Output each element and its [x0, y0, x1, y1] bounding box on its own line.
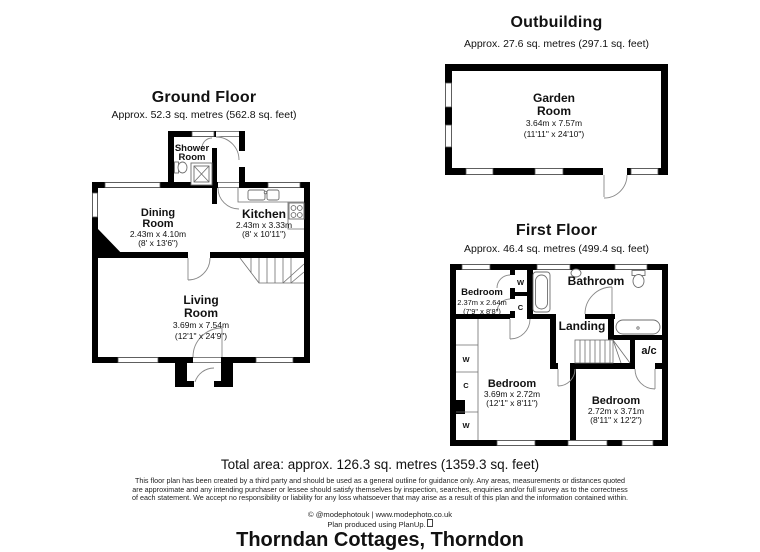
missing-glyph-box [427, 519, 433, 527]
first-floor-title: First Floor [443, 222, 670, 240]
living-room-door-swing [188, 258, 210, 280]
ground-floor-stairs [240, 258, 304, 283]
bedroom1-label: Bedroom [461, 287, 503, 298]
wardrobe3-label: W [462, 421, 470, 430]
outbuilding-doors [604, 175, 627, 198]
living-room-label: Living [183, 293, 218, 307]
wardrobe-label: W [517, 278, 525, 287]
disclaimer: This floor plan has been created by a th… [0, 477, 760, 503]
dining-room-imperial: (8' x 13'6") [138, 238, 178, 248]
porch-door-swing [195, 368, 214, 382]
bedroom3-imperial: (8'11" x 12'2") [590, 415, 642, 425]
bedroom2-imperial: (12'1" x 8'11") [486, 398, 538, 408]
disclaimer-line: of each statement. We accept no responsi… [0, 494, 760, 503]
garden-room-door-swing [604, 175, 627, 198]
bedroom1-door-swing [510, 319, 530, 339]
garden-room-label2: Room [537, 104, 571, 118]
garden-room-metric: 3.64m x 7.57m [526, 118, 582, 128]
cupboard-label: C [518, 303, 524, 312]
living-room-imperial: (12'1" x 24'9") [175, 331, 227, 341]
ac-label: a/c [641, 345, 656, 357]
ground-floor-title: Ground Floor [88, 89, 320, 107]
credit-text: © @modephotouk | www.modephoto.co.uk [308, 510, 452, 519]
sink-icon [248, 190, 265, 200]
floorplan-canvas: Ground Floor Approx. 52.3 sq. metres (56… [0, 0, 760, 552]
wardrobe2-label: W [462, 355, 470, 364]
outbuilding-plan: Garden Room 3.64m x 7.57m (11'11" x 24'1… [443, 62, 670, 202]
first-floor-plan: Bedroom 2.37m x 2.64m (7'9" x 8'8") W C … [448, 262, 670, 448]
first-floor-subtitle: Approx. 46.4 sq. metres (499.4 sq. feet) [423, 243, 690, 255]
entrance-door-swing [216, 137, 239, 160]
bedroom3-door-swing [635, 369, 655, 389]
total-area: Total area: approx. 126.3 sq. metres (13… [0, 457, 760, 472]
cupboard2-label: C [463, 381, 469, 390]
drainer-icon [267, 190, 279, 200]
ground-floor-subtitle: Approx. 52.3 sq. metres (562.8 sq. feet) [68, 109, 340, 121]
kitchen-label: Kitchen [242, 207, 286, 221]
bathroom-door-swing [585, 287, 612, 314]
first-floor-stairs [575, 340, 630, 363]
living-room-label2: Room [184, 306, 218, 320]
produced-text: Plan produced using PlanUp. [327, 520, 425, 529]
outbuilding-title: Outbuilding [443, 14, 670, 32]
shower-room-fixtures [175, 162, 213, 185]
credit-line: © @modephotouk | www.modephoto.co.uk [0, 510, 760, 519]
kitchen-door-swing [218, 188, 239, 209]
shower-room-label2: Room [179, 152, 206, 163]
bedroom1-metric: 2.37m x 2.64m [457, 298, 507, 307]
produced-line: Plan produced using PlanUp. [0, 519, 760, 529]
bedroom1-imperial: (7'9" x 8'8") [463, 307, 501, 316]
landing-label: Landing [559, 319, 606, 333]
outbuilding-labels: Garden Room 3.64m x 7.57m (11'11" x 24'1… [524, 91, 585, 139]
kitchen-imperial: (8' x 10'11") [242, 229, 286, 239]
outbuilding-subtitle: Approx. 27.6 sq. metres (297.1 sq. feet) [423, 38, 690, 50]
garden-room-imperial: (11'11" x 24'10") [524, 129, 585, 139]
property-title: Thorndan Cottages, Thorndon [0, 529, 760, 552]
living-room-metric: 3.69m x 7.54m [173, 320, 229, 330]
bathroom-label: Bathroom [568, 274, 625, 288]
garden-room-label: Garden [533, 91, 575, 105]
first-floor-labels: Bedroom 2.37m x 2.64m (7'9" x 8'8") W C … [457, 274, 656, 430]
ground-floor-plan: Shower Room Dining Room 2.43m x 4.10m (8… [88, 131, 320, 403]
